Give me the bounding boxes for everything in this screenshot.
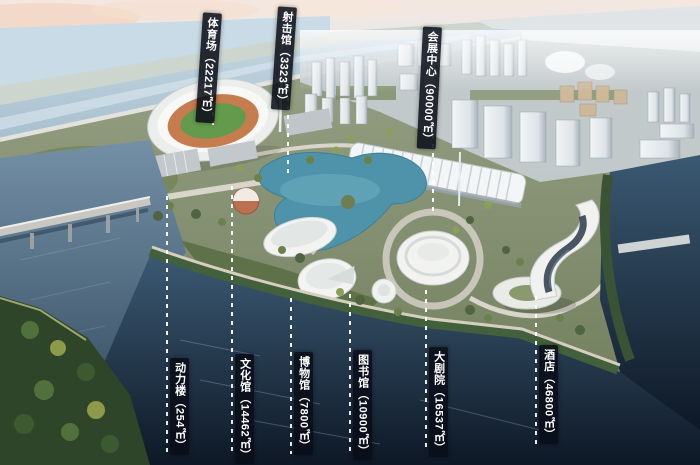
annotation-stadium-name: 体育场 bbox=[204, 17, 218, 52]
annotation-grand-theater-area: （16537㎡） bbox=[433, 386, 445, 454]
power-building-structure bbox=[233, 188, 259, 214]
annotation-power-building-area: （254㎡） bbox=[174, 397, 186, 451]
annotation-hotel-label: 酒店（46800㎡） bbox=[539, 345, 558, 444]
annotation-museum-area: （7800㎡） bbox=[298, 391, 310, 452]
annotation-cultural-center-name: 文化馆 bbox=[239, 358, 251, 393]
annotation-grand-theater-name: 大剧院 bbox=[433, 351, 445, 386]
leader-line-library bbox=[349, 294, 351, 452]
annotation-convention-center-area: （90000㎡） bbox=[420, 77, 436, 145]
annotation-library-area: （10900㎡） bbox=[357, 389, 369, 457]
annotation-library-name: 图书馆 bbox=[357, 354, 369, 389]
annotation-hotel-name: 酒店 bbox=[543, 349, 555, 372]
annotation-museum-label: 博物馆（7800㎡） bbox=[294, 352, 313, 455]
aerial-rendering: 体育场（22217㎡） 射击馆（3323㎡） 会展中心（90000㎡） 动力楼（… bbox=[0, 0, 700, 465]
annotation-stadium-area: （22217㎡） bbox=[199, 51, 216, 119]
annotation-shooting-hall: 射击馆（3323㎡） bbox=[278, 7, 297, 110]
pavilion-building bbox=[372, 279, 396, 303]
annotation-stadium: 体育场（22217㎡） bbox=[203, 13, 222, 123]
annotation-power-building-label: 动力楼（254㎡） bbox=[170, 358, 189, 455]
annotation-grand-theater-label: 大剧院（16537㎡） bbox=[429, 347, 448, 457]
annotation-cultural-center-area: （14462㎡） bbox=[239, 393, 251, 461]
annotation-convention-center-name: 会展中心 bbox=[424, 31, 438, 78]
leader-line-hotel bbox=[535, 296, 537, 444]
annotation-hotel-area: （46800㎡） bbox=[543, 372, 555, 440]
leader-line-power-building bbox=[166, 196, 168, 454]
annotation-shooting-hall-area: （3323㎡） bbox=[275, 45, 291, 107]
annotation-shooting-hall-name: 射击馆 bbox=[279, 11, 293, 46]
annotation-museum-name: 博物馆 bbox=[298, 356, 310, 391]
annotation-library-label: 图书馆（10900㎡） bbox=[353, 350, 372, 460]
annotation-power-building-name: 动力楼 bbox=[174, 362, 186, 397]
leader-line-grand-theater bbox=[425, 290, 427, 450]
leader-line-museum bbox=[290, 298, 292, 454]
library-theater-building bbox=[397, 231, 469, 285]
leader-line-cultural-center bbox=[231, 186, 233, 454]
annotation-cultural-center-label: 文化馆（14462㎡） bbox=[235, 354, 254, 464]
annotation-convention-center: 会展中心（90000㎡） bbox=[423, 27, 442, 149]
